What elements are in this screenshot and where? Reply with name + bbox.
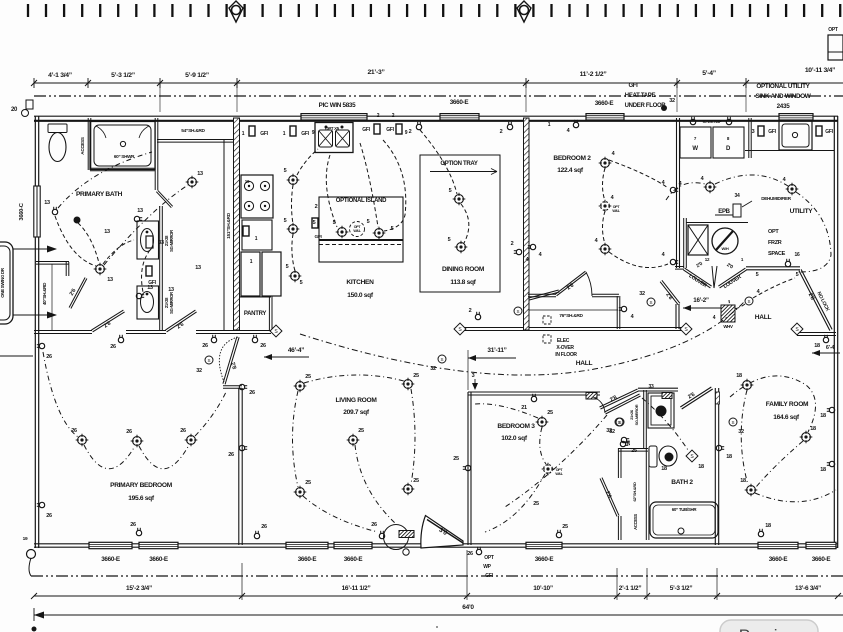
svg-text:GFI: GFI (260, 131, 268, 137)
svg-text:SG-MIRROR: SG-MIRROR (169, 292, 174, 314)
svg-text:S: S (207, 358, 210, 363)
svg-text:13: 13 (104, 229, 110, 235)
svg-text:BEDROOM 2: BEDROOM 2 (553, 155, 591, 162)
svg-text:25: 25 (305, 374, 311, 380)
svg-text:26: 26 (46, 354, 52, 360)
svg-text:ACCESS: ACCESS (633, 514, 638, 530)
svg-text:3660-E: 3660-E (450, 99, 469, 106)
svg-text:18: 18 (736, 373, 742, 379)
svg-text:GFI: GFI (314, 234, 322, 240)
svg-text:10’-10”: 10’-10” (533, 585, 553, 592)
svg-text:209.7 sqf: 209.7 sqf (343, 409, 370, 416)
svg-text:3660-E: 3660-E (149, 556, 168, 563)
svg-text:SG-MIRROR: SG-MIRROR (169, 230, 174, 252)
svg-text:HALL: HALL (755, 314, 772, 321)
svg-text:32: 32 (196, 368, 202, 374)
svg-text:13: 13 (107, 277, 113, 283)
svg-text:26: 26 (249, 390, 255, 396)
svg-text:26: 26 (467, 551, 473, 557)
svg-text:18: 18 (810, 426, 816, 432)
svg-text:LIVING ROOM: LIVING ROOM (335, 397, 377, 404)
svg-text:54”SH.&RD: 54”SH.&RD (181, 128, 205, 134)
svg-text:2: 2 (315, 204, 318, 210)
svg-text:EPB: EPB (718, 209, 730, 215)
svg-text:25: 25 (547, 410, 553, 416)
svg-text:S: S (516, 309, 519, 314)
svg-text:3660-E: 3660-E (812, 556, 831, 563)
svg-text:195.6 sqf: 195.6 sqf (128, 495, 155, 502)
svg-text:26: 26 (110, 344, 116, 350)
svg-text:S: S (440, 357, 443, 362)
svg-text:26: 26 (126, 429, 132, 435)
svg-text:16: 16 (795, 252, 800, 258)
svg-text:PRIMARY BATH: PRIMARY BATH (76, 191, 123, 198)
svg-text:SG-MIRROR: SG-MIRROR (634, 404, 639, 425)
svg-text:WP: WP (483, 564, 491, 570)
svg-text:2: 2 (469, 308, 472, 314)
svg-text:S: S (747, 299, 750, 304)
svg-text:26: 26 (130, 522, 136, 528)
svg-text:18: 18 (820, 467, 826, 473)
svg-text:18: 18 (726, 454, 732, 460)
svg-text:11’-2 1/2”: 11’-2 1/2” (580, 71, 607, 78)
svg-text:25: 25 (413, 478, 419, 484)
svg-text:13: 13 (147, 285, 153, 291)
svg-text:S: S (649, 300, 652, 305)
svg-text:64’0: 64’0 (462, 604, 474, 611)
svg-text:5’-3 1/2”: 5’-3 1/2” (670, 585, 693, 592)
svg-text:GFI: GFI (301, 131, 309, 137)
svg-text:2: 2 (409, 129, 412, 135)
svg-text:34: 34 (735, 193, 740, 199)
svg-text:PANTRY: PANTRY (244, 311, 266, 317)
svg-text:26: 26 (260, 343, 266, 349)
svg-text:25: 25 (413, 373, 419, 379)
svg-text:10’-11 3/4”: 10’-11 3/4” (805, 67, 835, 74)
svg-text:13: 13 (168, 287, 174, 293)
svg-text:62”SH.&RD: 62”SH.&RD (632, 482, 637, 501)
svg-text:FAMILY ROOM: FAMILY ROOM (766, 401, 809, 408)
svg-text:OPT X5: OPT X5 (325, 126, 340, 131)
svg-text:S: S (731, 420, 734, 425)
svg-text:76”SH.&RD: 76”SH.&RD (559, 313, 583, 319)
svg-text:32: 32 (669, 98, 675, 104)
svg-text:2: 2 (511, 241, 514, 247)
svg-text:DINING ROOM: DINING ROOM (442, 266, 485, 273)
svg-text:16’-2”: 16’-2” (693, 297, 709, 304)
svg-text:UTILITY: UTILITY (790, 208, 814, 215)
svg-text:5: 5 (367, 219, 370, 225)
svg-text:26: 26 (180, 428, 186, 434)
svg-text:46’-4”: 46’-4” (288, 347, 304, 354)
svg-text:18: 18 (740, 478, 746, 484)
svg-text:60” TUB/SHR: 60” TUB/SHR (672, 507, 698, 512)
svg-text:OPT: OPT (828, 27, 838, 33)
svg-text:GFI: GFI (362, 127, 370, 133)
svg-text:13: 13 (44, 200, 50, 206)
svg-text:5’-3 1/2”: 5’-3 1/2” (111, 72, 135, 79)
svg-text:3660-E: 3660-E (344, 556, 363, 563)
svg-text:6’-4: 6’-4 (826, 345, 836, 351)
svg-text:2: 2 (500, 129, 503, 135)
svg-text:3660-C: 3660-C (19, 202, 25, 220)
svg-text:18: 18 (698, 464, 704, 470)
svg-text:3: 3 (752, 129, 755, 135)
svg-text:5: 5 (796, 272, 799, 278)
svg-text:WHV: WHV (723, 324, 733, 329)
svg-text:102.0 sqf: 102.0 sqf (501, 435, 528, 442)
svg-text:S: S (617, 420, 620, 425)
svg-text:16’-11 1/2”: 16’-11 1/2” (342, 585, 371, 592)
svg-text:26: 26 (371, 522, 377, 528)
svg-text:5: 5 (449, 188, 452, 194)
svg-text:OPTIONAL UTILITY: OPTIONAL UTILITY (756, 83, 810, 90)
svg-text:X-OVER: X-OVER (556, 345, 574, 351)
svg-text:W: W (692, 146, 698, 152)
svg-text:FRZR: FRZR (768, 240, 782, 246)
svg-text:21’-3”: 21’-3” (367, 69, 384, 76)
svg-text:26: 26 (228, 452, 234, 458)
svg-text:5: 5 (756, 272, 759, 278)
svg-text:32: 32 (639, 291, 645, 297)
svg-text:ACCESS: ACCESS (80, 137, 85, 155)
svg-text:Preview: Preview (739, 626, 800, 632)
svg-text:UNDER FLOOR: UNDER FLOOR (625, 103, 667, 109)
svg-text:25: 25 (453, 456, 459, 462)
svg-text:OPTIONAL ISLAND: OPTIONAL ISLAND (336, 198, 387, 204)
svg-text:GFI: GFI (386, 127, 394, 133)
svg-text:KITCHEN: KITCHEN (346, 279, 374, 286)
svg-text:ELEC: ELEC (557, 338, 570, 344)
svg-text:26: 26 (261, 524, 267, 530)
svg-text:19: 19 (23, 536, 28, 542)
svg-text:33: 33 (158, 240, 164, 246)
svg-text:W/H: W/H (722, 246, 729, 251)
svg-text:25: 25 (562, 524, 568, 530)
svg-text:HEAT TAPE: HEAT TAPE (625, 93, 656, 99)
svg-text:13’-6 3/4”: 13’-6 3/4” (795, 585, 821, 592)
svg-text:26: 26 (202, 343, 208, 349)
svg-text:25: 25 (305, 480, 311, 486)
svg-text:151”SH.&RD: 151”SH.&RD (226, 212, 232, 239)
svg-text:GFI: GFI (768, 129, 776, 135)
svg-text:164.6 sqf: 164.6 sqf (773, 414, 800, 421)
svg-text:W&L: W&L (555, 472, 563, 476)
svg-text:25: 25 (358, 428, 364, 434)
svg-text:2435: 2435 (777, 103, 791, 110)
svg-text:BATH 2: BATH 2 (671, 479, 693, 486)
svg-text:W&L: W&L (353, 229, 361, 233)
svg-text:13: 13 (195, 265, 201, 271)
svg-text:31’-11”: 31’-11” (487, 347, 506, 354)
svg-text:OPTION TRAY: OPTION TRAY (440, 161, 477, 167)
svg-text:5’-9 1/2”: 5’-9 1/2” (185, 72, 209, 79)
svg-text:18: 18 (661, 466, 667, 472)
svg-text:SINK AND WINDOW: SINK AND WINDOW (755, 93, 810, 100)
svg-text:PIC WIN 5835: PIC WIN 5835 (319, 102, 356, 109)
svg-text:3: 3 (472, 373, 475, 379)
svg-text:150.0 sqf: 150.0 sqf (347, 292, 374, 299)
svg-text:20: 20 (11, 107, 18, 113)
svg-text:18: 18 (765, 523, 771, 529)
svg-text:OPT: OPT (768, 229, 779, 235)
svg-text:113.8 sqf: 113.8 sqf (450, 279, 476, 286)
svg-text:4’-1 3/4”: 4’-1 3/4” (48, 72, 72, 79)
svg-text:18: 18 (820, 413, 826, 419)
svg-text:60 WK NSP: 60 WK NSP (703, 119, 722, 124)
svg-text:32: 32 (738, 429, 744, 435)
svg-text:3660-E: 3660-E (595, 100, 614, 107)
svg-text:3660-E: 3660-E (101, 556, 120, 563)
svg-text:5: 5 (286, 264, 289, 270)
svg-text:3660-E: 3660-E (535, 556, 554, 563)
svg-text:33: 33 (649, 384, 654, 390)
svg-text:GFI: GFI (628, 83, 638, 89)
svg-text:21: 21 (521, 405, 527, 411)
svg-text:W&L: W&L (612, 209, 620, 213)
svg-text:5: 5 (313, 220, 316, 226)
svg-text:5: 5 (300, 280, 303, 286)
svg-text:13: 13 (197, 171, 203, 177)
svg-text:26: 26 (46, 513, 52, 519)
svg-text:5’-4”: 5’-4” (702, 70, 716, 77)
svg-text:18: 18 (814, 343, 820, 349)
svg-text:SPACE: SPACE (768, 251, 786, 257)
svg-text:122.4 sqf: 122.4 sqf (557, 167, 584, 174)
svg-text:GFI: GFI (825, 129, 833, 135)
svg-text:ONE SWING DR: ONE SWING DR (0, 267, 5, 298)
svg-text:60” SHWR: 60” SHWR (114, 154, 135, 159)
svg-text:40”SH.&RD: 40”SH.&RD (42, 282, 47, 305)
svg-text:5: 5 (448, 237, 451, 243)
svg-text:15’-2 3/4”: 15’-2 3/4” (126, 585, 152, 592)
svg-text:5: 5 (284, 218, 287, 224)
svg-text:OPT: OPT (484, 555, 494, 561)
svg-text:3660-E: 3660-E (769, 556, 788, 563)
svg-text:2’-1 1/2”: 2’-1 1/2” (619, 585, 642, 592)
svg-text:3660-E: 3660-E (298, 556, 317, 563)
svg-text:DEHUMIDIFIER: DEHUMIDIFIER (761, 196, 792, 201)
svg-text:IN FLOOR: IN FLOOR (555, 352, 577, 358)
svg-text:25: 25 (533, 501, 539, 507)
svg-text:PRIMARY BEDROOM: PRIMARY BEDROOM (110, 482, 173, 489)
svg-text:BEDROOM 3: BEDROOM 3 (497, 423, 535, 430)
svg-text:5: 5 (284, 168, 287, 174)
svg-text:13: 13 (137, 208, 143, 214)
svg-text:HALL: HALL (576, 360, 593, 367)
svg-text:32: 32 (606, 428, 612, 434)
